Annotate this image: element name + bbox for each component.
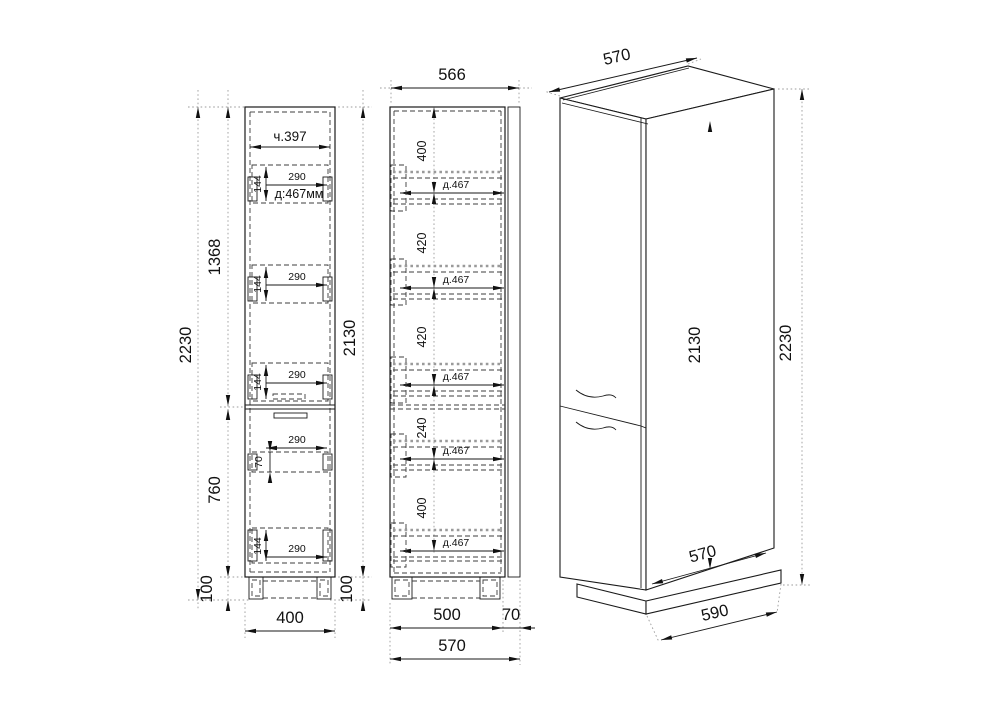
dim-shelf3-depth: д.467 xyxy=(443,371,470,383)
dim-shelf1-depth: д.467 xyxy=(443,179,470,191)
cabinet-drawing-canvas: ч.397 290 144 д:467мм 290 144 xyxy=(0,0,1000,707)
dim-front-inner-width: ч.397 xyxy=(273,129,306,144)
dim-slide3-width: 290 xyxy=(288,369,306,381)
side-shelf-1: д.467 xyxy=(391,165,504,211)
dim-slide2-width: 290 xyxy=(288,271,306,283)
dim-iso-body-height: 2130 xyxy=(686,327,704,364)
front-slide-2: 290 144 xyxy=(248,265,332,303)
front-slide-5: 290 144 xyxy=(248,528,332,563)
dim-slide1-width: 290 xyxy=(288,171,306,183)
dim-slide5-width: 290 xyxy=(288,543,306,555)
dim-shelf4-depth: д.467 xyxy=(443,445,470,457)
dim-iso-top-depth: 570 xyxy=(601,45,632,69)
iso-view: 570 2130 2230 570 590 xyxy=(544,45,810,642)
side-shelf-2: д.467 xyxy=(391,259,504,305)
front-slide-3: 290 144 xyxy=(248,363,332,401)
dim-side-bottom-total: 570 xyxy=(438,637,466,655)
dim-chain-2: 420 xyxy=(415,233,429,254)
dim-slide4-height: 70 xyxy=(253,456,265,468)
side-shelf-3: д.467 xyxy=(391,357,504,403)
technical-drawing: ч.397 290 144 д:467мм 290 144 xyxy=(0,0,1000,707)
dim-chain-1: 400 xyxy=(415,141,429,162)
dim-side-bottom-door: 70 xyxy=(502,606,520,624)
dim-front-upper-section: 1368 xyxy=(206,239,224,276)
dim-chain-5: 400 xyxy=(415,498,429,519)
dim-shelf5-depth: д.467 xyxy=(443,537,470,549)
dim-slide1-height: 144 xyxy=(252,175,264,193)
dim-slide2-height: 144 xyxy=(252,275,264,293)
dim-front-plinth-left: 100 xyxy=(198,575,216,603)
dim-slide5-height: 144 xyxy=(252,537,264,555)
dim-iso-total-height: 2230 xyxy=(777,325,795,362)
dim-iso-plinth-depth: 590 xyxy=(699,601,730,625)
dim-slide4-width: 290 xyxy=(288,434,306,446)
dim-slide1-depth: д:467мм xyxy=(275,187,324,201)
dim-side-bottom-body: 500 xyxy=(433,606,461,624)
dim-front-width: 400 xyxy=(276,609,304,627)
dim-side-top-width: 566 xyxy=(438,66,466,84)
dim-chain-3: 420 xyxy=(415,327,429,348)
dim-front-total-height: 2230 xyxy=(177,327,195,364)
dim-shelf2-depth: д.467 xyxy=(443,274,470,286)
dim-front-lower-section: 760 xyxy=(206,476,224,504)
front-slide-4: 290 70 xyxy=(248,434,332,483)
side-view: 566 д.467 д.467 xyxy=(380,66,535,665)
side-shelf-5: д.467 xyxy=(391,523,504,567)
dim-front-body-height: 2130 xyxy=(341,320,359,357)
side-shelf-4: д.467 xyxy=(391,434,504,477)
front-slide-1: 290 144 д:467мм xyxy=(248,165,332,203)
front-view: ч.397 290 144 д:467мм 290 144 xyxy=(177,90,372,638)
dim-front-plinth-right: 100 xyxy=(338,575,356,603)
dim-slide3-height: 144 xyxy=(252,373,264,391)
dim-chain-4: 240 xyxy=(415,418,429,439)
